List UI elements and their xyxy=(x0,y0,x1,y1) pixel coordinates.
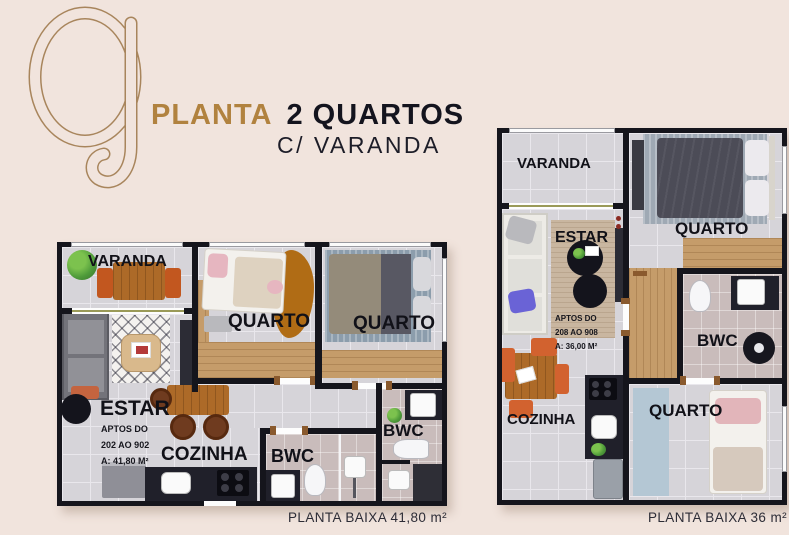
varanda-chair xyxy=(165,268,181,298)
room-label-bwc: BWC xyxy=(697,332,738,349)
door-jamb xyxy=(270,426,276,435)
door-jamb xyxy=(680,376,686,385)
title-planta: PLANTA xyxy=(151,99,272,132)
apartment-info: APTOS DO 208 AO 908 A: 36,00 M² xyxy=(555,312,598,354)
headboard xyxy=(769,136,775,220)
door-jamb xyxy=(621,330,630,336)
page: PLANTA 2 QUARTOS C/ VARANDA xyxy=(0,0,789,535)
shower-head xyxy=(388,470,410,490)
room-label-quarto1: QUARTO xyxy=(228,312,310,331)
pillow xyxy=(745,140,769,176)
wall-bwc-left xyxy=(677,268,683,378)
intercom-dots xyxy=(616,224,621,229)
door-opening xyxy=(279,378,311,384)
wall-between-quartos xyxy=(315,242,322,384)
pillow xyxy=(207,253,228,278)
sofa-cushion xyxy=(508,259,542,293)
double-bed xyxy=(655,136,773,220)
door-jamb xyxy=(621,298,630,304)
door-jamb xyxy=(274,376,280,385)
sliding-door-rail xyxy=(72,310,184,312)
wardrobe xyxy=(632,140,644,210)
blanket xyxy=(713,447,763,491)
pillow xyxy=(267,280,283,294)
kitchen-sink xyxy=(591,415,617,439)
tv-panel xyxy=(180,320,192,390)
apartment-info-line: 202 AO 902 xyxy=(101,438,149,454)
apartment-info-line: A: 36,00 M² xyxy=(555,340,598,354)
apartment-info: APTOS DO 202 AO 902 A: 41,80 M² xyxy=(101,422,149,469)
door-opening xyxy=(623,304,629,330)
intercom-dots xyxy=(616,216,621,221)
toilet-icon xyxy=(393,439,429,459)
dining-chair xyxy=(203,414,229,440)
pillow xyxy=(507,288,536,314)
wall xyxy=(497,128,502,505)
dining-chair xyxy=(531,338,557,356)
shower-floor xyxy=(413,464,442,501)
wall-bwc1-left xyxy=(260,428,266,506)
bwc2-sink xyxy=(410,393,436,417)
dining-table xyxy=(167,385,229,415)
plan-right-caption: PLANTA BAIXA 36 m² xyxy=(600,510,787,525)
window xyxy=(509,128,615,133)
shower-divider xyxy=(339,434,341,501)
window xyxy=(442,258,447,342)
sofa-cushion xyxy=(68,320,104,354)
plant-icon xyxy=(591,443,606,456)
room-label-bwc1: BWC xyxy=(271,447,314,465)
room-label-varanda: VARANDA xyxy=(88,254,167,270)
wall-bwc2-left xyxy=(376,383,382,506)
room-label-quarto2: QUARTO xyxy=(353,314,435,333)
bwc1-sink xyxy=(271,474,295,498)
fridge xyxy=(593,459,623,499)
bwc-sink xyxy=(737,279,765,305)
apartment-info-line: 208 AO 908 xyxy=(555,326,598,340)
plan-left-caption: PLANTA BAIXA 41,80 m² xyxy=(230,510,447,525)
room-label-quarto2: QUARTO xyxy=(649,402,722,419)
pillow xyxy=(413,257,431,291)
cooktop xyxy=(589,378,617,400)
side-table xyxy=(61,394,91,424)
room-label-bwc2: BWC xyxy=(383,422,424,439)
title-varanda: C/ VARANDA xyxy=(277,132,441,159)
shower-pole xyxy=(353,478,356,498)
table-decor xyxy=(131,342,151,358)
room-label-cozinha: COZINHA xyxy=(507,412,575,427)
room-label-varanda: VARANDA xyxy=(517,156,591,171)
window xyxy=(782,146,787,214)
coffee-table xyxy=(573,274,607,308)
wall xyxy=(57,242,62,506)
floorplan-right: VARANDA QUARTO ESTAR APTOS DO 208 AO 908… xyxy=(497,128,787,505)
apartment-info-line: APTOS DO xyxy=(101,422,149,438)
table-decor xyxy=(585,246,599,256)
window xyxy=(782,406,787,472)
window xyxy=(71,242,183,247)
stove xyxy=(217,470,249,496)
wall xyxy=(497,500,787,505)
sliding-door-rail xyxy=(509,205,613,207)
quarto1-wood-floor xyxy=(198,342,315,378)
title-quartos: 2 QUARTOS xyxy=(286,99,464,132)
corridor-wood-floor xyxy=(629,268,677,378)
door-opening xyxy=(275,428,303,434)
door-opening xyxy=(357,383,387,389)
door-jamb xyxy=(352,381,358,390)
tv-panel xyxy=(615,228,623,302)
plant-icon xyxy=(573,248,585,259)
quarto2-wood-floor xyxy=(322,350,442,378)
shower-head xyxy=(344,456,366,478)
window xyxy=(209,242,305,247)
dining-chair xyxy=(555,364,569,394)
page-title: PLANTA 2 QUARTOS xyxy=(151,99,464,132)
apartment-info-line: A: 41,80 M² xyxy=(101,454,149,470)
door-jamb xyxy=(302,426,308,435)
toilet-icon xyxy=(304,464,326,496)
door-jamb xyxy=(633,271,647,276)
room-label-cozinha: COZINHA xyxy=(161,445,248,464)
room-label-quarto1: QUARTO xyxy=(675,220,748,237)
wall-varanda-right xyxy=(192,242,198,392)
quarto1-wood-floor xyxy=(683,238,782,268)
wall xyxy=(57,501,447,506)
door-jamb xyxy=(386,381,392,390)
blanket xyxy=(657,138,743,218)
washing-machine-door xyxy=(754,343,764,353)
varanda-chair xyxy=(97,268,113,298)
wall-quarto1-bottom xyxy=(677,268,787,274)
room-label-estar: ESTAR xyxy=(555,230,608,246)
entry-door xyxy=(204,501,236,506)
kitchen-sink xyxy=(161,472,191,494)
pillow xyxy=(745,180,769,216)
toilet-icon xyxy=(689,280,711,312)
floorplan-left: VARANDA QUARTO QUARTO ESTAR APTOS DO 202… xyxy=(57,242,447,506)
window xyxy=(329,242,431,247)
apartment-info-line: APTOS DO xyxy=(555,312,598,326)
door-opening xyxy=(685,378,715,384)
room-label-estar: ESTAR xyxy=(100,398,170,419)
door-jamb xyxy=(714,376,720,385)
dining-chair xyxy=(170,414,196,440)
bwc2-divider-wall xyxy=(382,460,410,464)
